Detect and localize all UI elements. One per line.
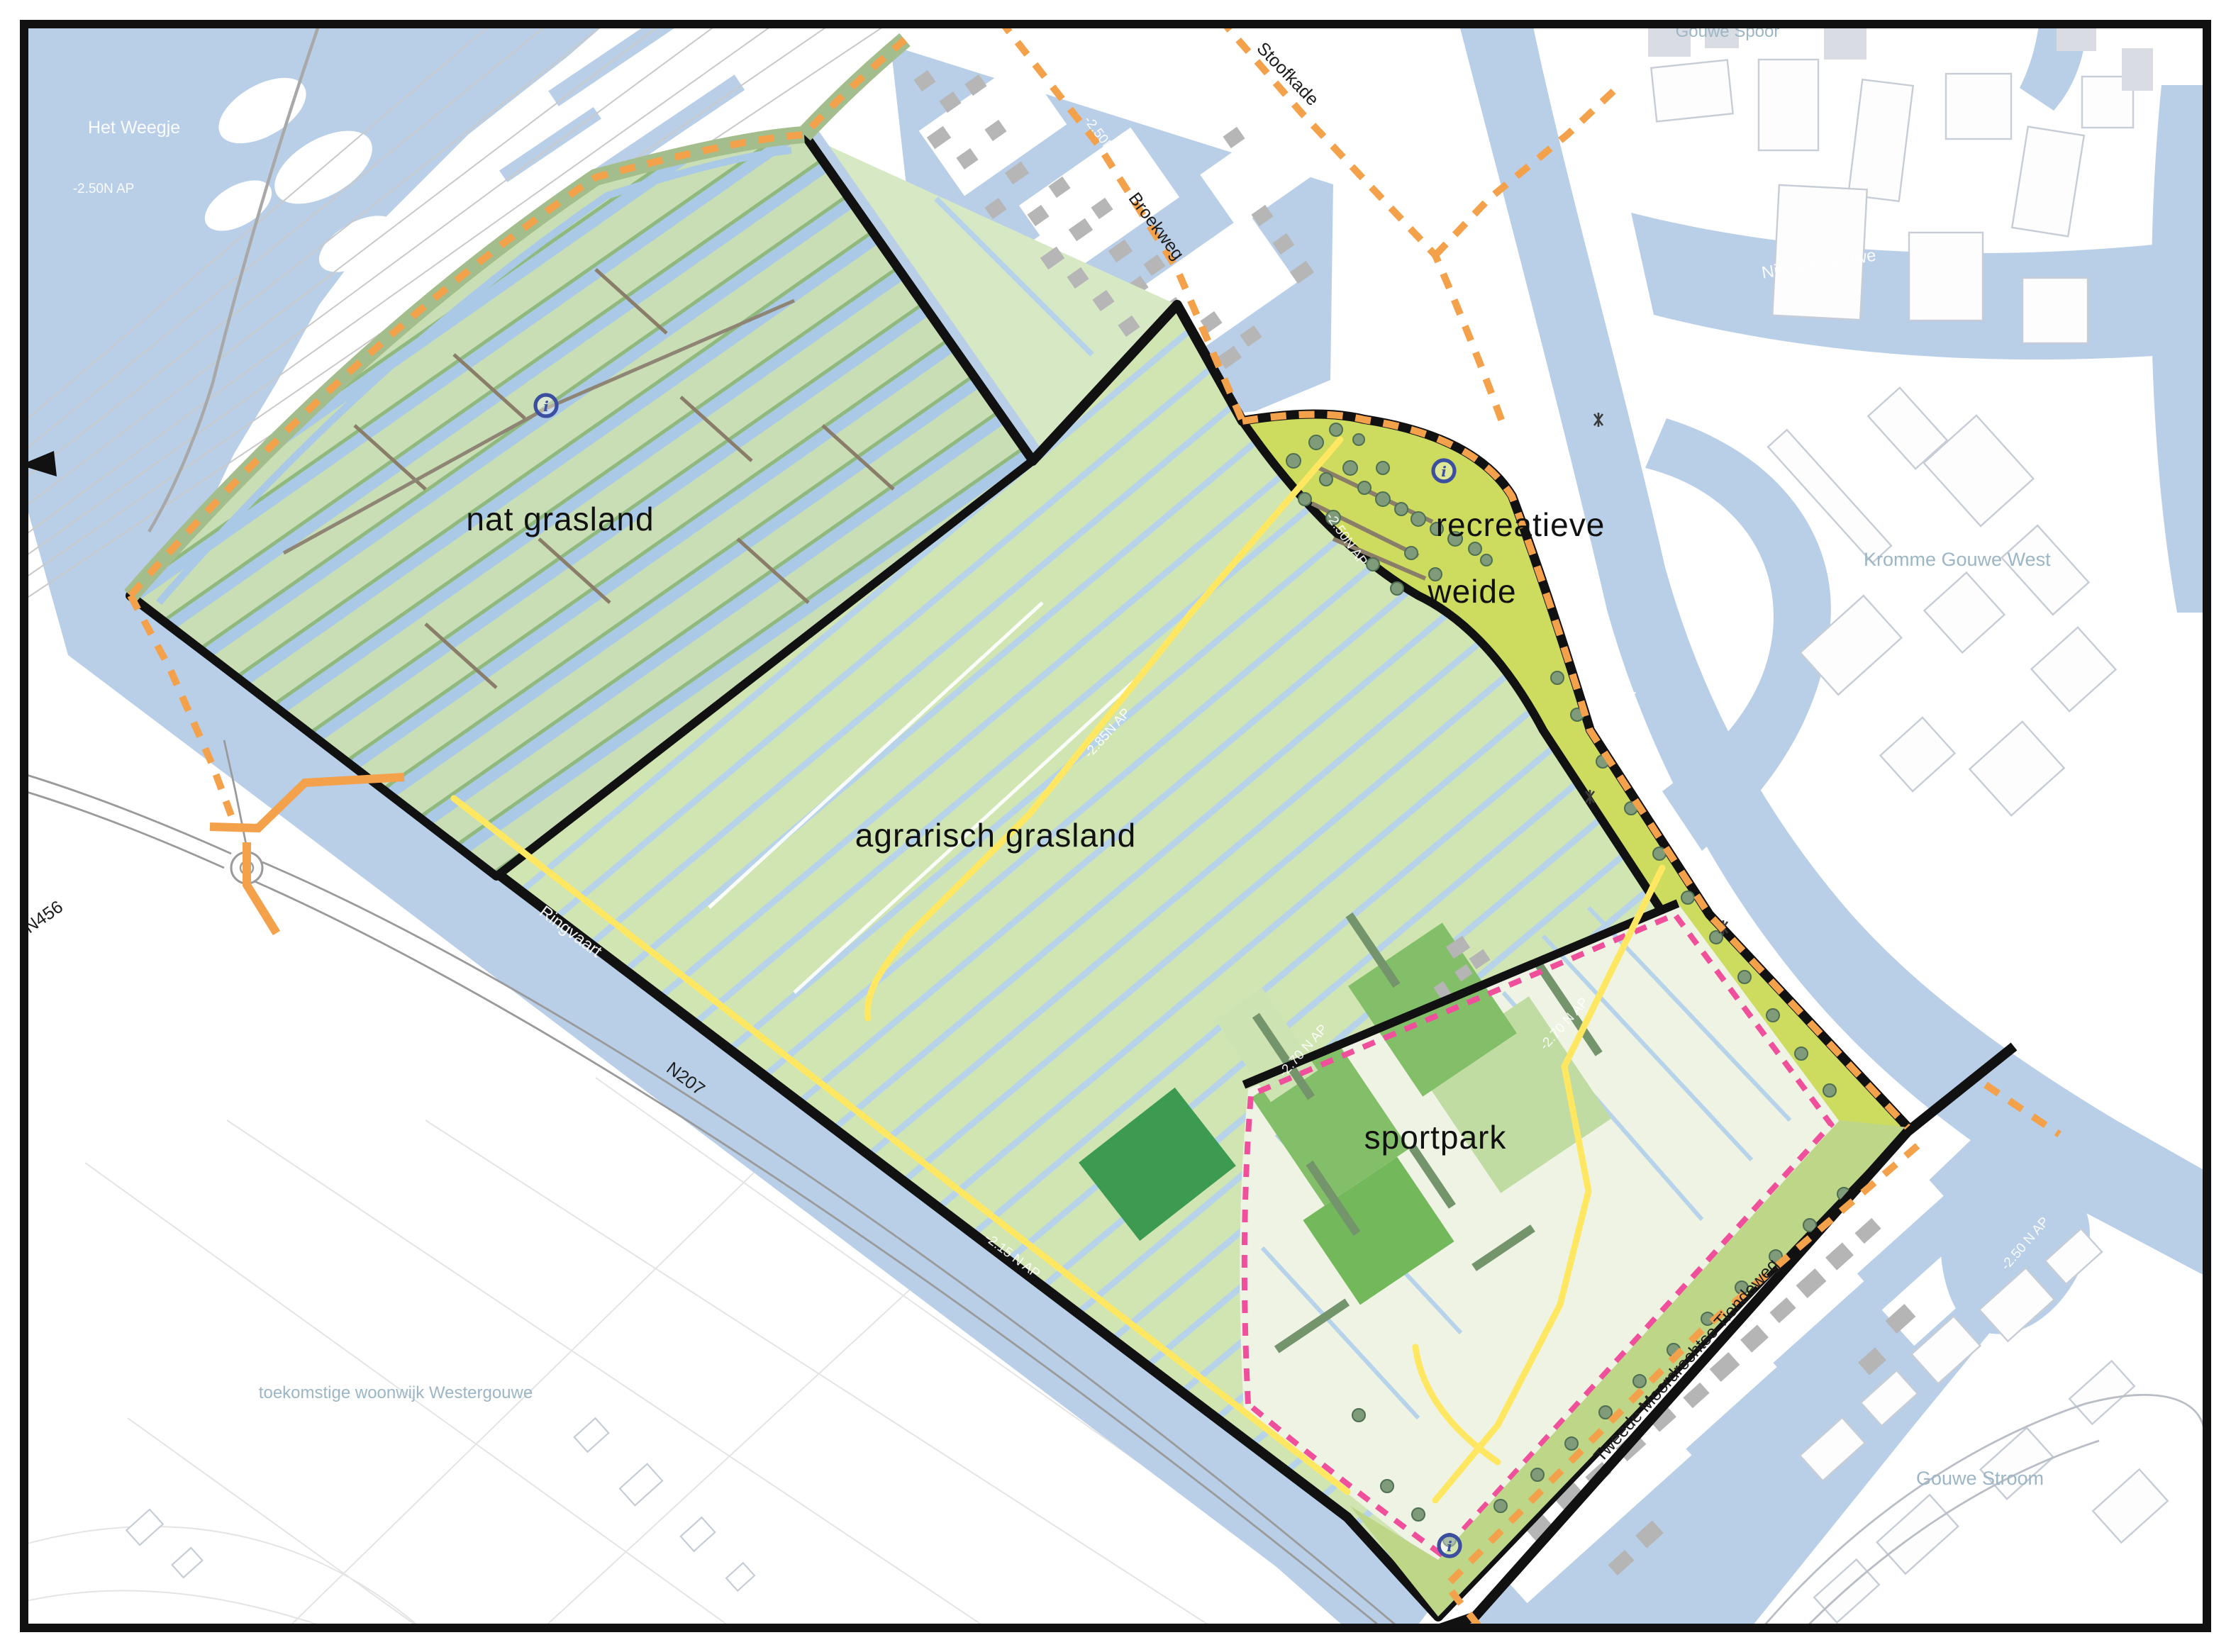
info-icon-glyph: i <box>1441 463 1447 480</box>
info-icon-nat: i <box>535 395 557 416</box>
elev-het-weegje: -2.50N AP <box>73 182 135 196</box>
info-icon-glyph: i <box>1447 1538 1452 1555</box>
zone-label-sportpark: sportpark <box>1364 1119 1507 1156</box>
label-kromme-gouwe-west: Kromme Gouwe West <box>1864 549 2051 570</box>
label-het-weegje: Het Weegje <box>88 118 180 138</box>
zone-label-recreatieve: recreatieve <box>1436 506 1606 543</box>
plan-map-canvas: i i i nat grasland agrarisch grasland re… <box>0 0 2231 1652</box>
label-gouwe-stroom: Gouwe Stroom <box>1916 1468 2044 1489</box>
info-icon-glyph: i <box>543 398 549 415</box>
label-westergouwe: toekomstige woonwijk Westergouwe <box>259 1383 533 1402</box>
zone-label-weide: weide <box>1427 573 1516 610</box>
zone-label-nat-grasland: nat grasland <box>466 501 654 537</box>
info-icon-weide: i <box>1433 460 1454 481</box>
info-icon-south: i <box>1439 1535 1460 1556</box>
zone-label-agrarisch-grasland: agrarisch grasland <box>855 817 1136 854</box>
